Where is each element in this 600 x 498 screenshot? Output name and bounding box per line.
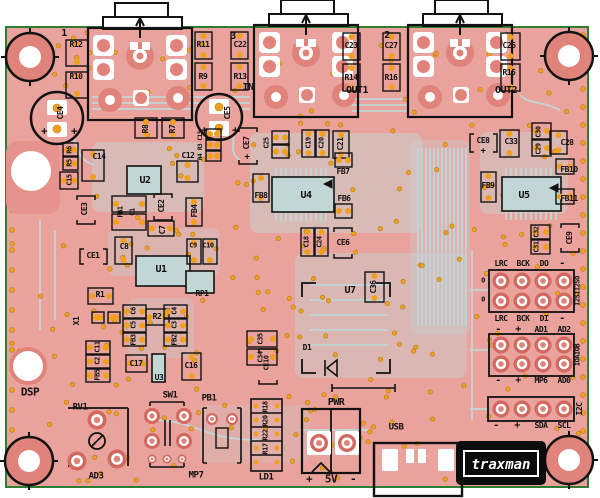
silk-label-pwr-minus: - <box>350 474 356 485</box>
silk-label-ce7: CE7 <box>243 137 251 150</box>
silk-label-r2: R2 <box>153 313 162 321</box>
silk-label-r15: R15 <box>503 69 516 77</box>
silk-label-u3: U3 <box>155 374 164 382</box>
silk-label-r17: R17 <box>263 443 270 454</box>
silk-label-c5: C5 <box>131 321 138 328</box>
silk-label-c23: C23 <box>345 42 358 50</box>
silk-label-ce7-plus: + <box>245 154 250 163</box>
silk-label-u4: U4 <box>300 191 311 201</box>
silk-label-r18: R18 <box>263 401 270 412</box>
silk-label-hdr1-o1: 0 <box>481 278 485 285</box>
silk-label-r4: R4 <box>198 154 204 160</box>
silk-label-pb1: PB1 <box>202 395 217 404</box>
silk-label-r3: R3 <box>198 144 204 150</box>
silk-label-c30: C30 <box>536 126 543 137</box>
silk-label-c22: C22 <box>234 41 247 49</box>
silk-label-hdr1b-lrc: LRC <box>495 315 508 323</box>
silk-label-c3: C3 <box>172 321 179 328</box>
silk-label-c6: C6 <box>131 307 138 314</box>
silk-label-i2s-vertical: I2SII2SO <box>575 276 582 306</box>
silk-label-hdr1-do: DO <box>540 260 549 268</box>
silk-label-r9: R9 <box>199 73 208 81</box>
silk-label-pwr-5v: 5V <box>325 474 337 485</box>
silk-label-hdr2b-dash: - <box>495 376 501 386</box>
silk-label-c24: C24 <box>317 236 324 247</box>
silk-label-r11: R11 <box>197 41 210 49</box>
silk-label-r7: R7 <box>169 125 177 134</box>
silk-label-hdr2b-plus: + <box>515 376 521 386</box>
silk-label-u7: U7 <box>344 286 355 296</box>
silk-label-ce9: CE9 <box>566 232 574 245</box>
silk-label-c20: C20 <box>319 137 326 148</box>
silk-label-hdr1b-dash: - <box>559 314 565 324</box>
silk-label-hdr3-scl: SCL <box>558 422 571 430</box>
silk-label-c1: C1 <box>130 208 137 215</box>
silk-label-c8: C8 <box>120 243 129 251</box>
silk-label-fb4: FB4 <box>191 205 199 218</box>
silk-label-ce3: CE3 <box>81 203 89 216</box>
silk-label-c14: C14 <box>93 153 106 161</box>
silk-label-hdr1-dash: - <box>559 259 565 269</box>
silk-label-hdr1b-bck: BCK <box>517 315 530 323</box>
silk-label-fb5: FB5 <box>95 369 102 380</box>
silkscreen-labels: 132R12R10R11R9C22R13C23C27R14R16C26R15IN… <box>0 0 600 498</box>
silk-label-hdr3-plus: + <box>514 421 520 431</box>
silk-label-c17: C17 <box>130 360 143 368</box>
silk-label-hdr2-ad2: AD2 <box>558 326 571 334</box>
silk-label-fb10: FB10 <box>560 166 577 174</box>
silk-label-ioab-vertical: IOAIOB <box>575 344 582 366</box>
silk-label-out2: OUT2 <box>495 86 517 96</box>
pcb-canvas: traxman 132R12R10R11R9C22R13C23C27R14R16… <box>0 0 600 498</box>
silk-label-out1: OUT1 <box>346 86 368 96</box>
silk-label-fb2: FB2 <box>172 334 179 345</box>
traxman-logo-text: traxman <box>471 457 530 473</box>
silk-label-sw1: SW1 <box>163 392 178 401</box>
silk-label-fb11: FB11 <box>560 195 577 203</box>
silk-label-u5: U5 <box>518 191 529 201</box>
silk-label-ce4-plus-r: + <box>71 126 77 137</box>
silk-label-c2: C2 <box>95 357 102 364</box>
silk-label-hdr1-lrc: LRC <box>495 260 508 268</box>
silk-label-x1: X1 <box>73 317 81 326</box>
silk-label-marker-2: 2 <box>384 31 390 41</box>
silk-label-r6: R6 <box>67 146 74 153</box>
silk-label-ce1: CE1 <box>87 252 100 260</box>
silk-label-hdr1-o2: 0 <box>481 297 485 304</box>
silk-label-r13: R13 <box>234 73 247 81</box>
silk-label-pwr: PWR <box>328 398 345 408</box>
silk-label-fb9: FB9 <box>482 182 495 190</box>
silk-label-ce10: CE10 <box>264 356 271 371</box>
silk-label-c10: C10 <box>202 243 213 250</box>
silk-label-hdr2-plus: + <box>515 325 521 335</box>
silk-label-rv1: RV1 <box>73 404 88 413</box>
silk-label-c31: C31 <box>534 241 541 252</box>
silk-label-hdr1b-di: DI <box>540 315 549 323</box>
silk-label-fb6: FB6 <box>338 195 351 203</box>
silk-label-r20: R20 <box>263 415 270 426</box>
traxman-logo-frame: traxman <box>463 450 538 477</box>
silk-label-fb7: FB7 <box>337 168 350 176</box>
silk-label-d1: D1 <box>303 344 312 352</box>
silk-label-ce5: CE5 <box>224 107 232 120</box>
silk-label-c28: C28 <box>561 139 574 147</box>
silk-label-c36: C36 <box>370 281 378 294</box>
silk-label-ad3: AD3 <box>89 473 104 482</box>
silk-label-marker-1: 1 <box>61 29 67 39</box>
silk-label-c27: C27 <box>385 42 398 50</box>
silk-label-r14: R14 <box>345 74 358 82</box>
silk-label-hdr2b-mp6: MP6 <box>535 377 548 385</box>
silk-label-fb1: FB1 <box>118 206 125 217</box>
silk-label-i2c-vertical: I2C <box>576 403 584 416</box>
silk-label-c18: C18 <box>304 236 311 247</box>
silk-label-hdr3-dash: - <box>493 421 499 431</box>
silk-label-c16: C16 <box>185 362 198 370</box>
silk-label-u1: U1 <box>155 265 166 275</box>
silk-label-ce5-plus-r: + <box>232 125 238 136</box>
silk-label-c21: C21 <box>337 138 345 151</box>
silk-label-c35: C35 <box>258 333 265 344</box>
silk-label-c19: C19 <box>306 137 313 148</box>
silk-label-in: IN <box>242 83 253 93</box>
silk-label-ce6: CE6 <box>337 239 350 247</box>
silk-label-ce2: CE2 <box>158 200 166 213</box>
silk-label-c13: C13 <box>198 131 204 140</box>
silk-label-ce8: CE8 <box>477 137 490 145</box>
silk-label-hdr3-sda: SDA <box>535 422 548 430</box>
silk-label-ce8-plus: + <box>481 148 486 157</box>
silk-label-c7: C7 <box>159 226 167 235</box>
silk-label-r1: R1 <box>96 291 105 299</box>
silk-label-r16: R16 <box>385 74 398 82</box>
silk-label-c32: C32 <box>534 226 541 237</box>
silk-label-hdr2-ad1: AD1 <box>535 326 548 334</box>
silk-label-c4: C4 <box>172 307 179 314</box>
silk-label-c9: C9 <box>189 243 196 250</box>
silk-label-r12: R12 <box>70 41 83 49</box>
silk-label-c29: C29 <box>536 143 543 154</box>
silk-label-ce4-plus-l: + <box>41 126 47 137</box>
silk-label-c26: C26 <box>503 42 516 50</box>
silk-label-mp7: MP7 <box>189 472 204 481</box>
silk-label-ld1: LD1 <box>259 474 274 483</box>
silk-label-c33: C33 <box>505 138 518 146</box>
silk-label-ce4: CE4 <box>57 107 65 120</box>
silk-label-fb3: FB3 <box>131 334 138 345</box>
silk-label-u2: U2 <box>139 176 150 186</box>
silk-label-fb8: FB8 <box>255 192 268 200</box>
silk-label-hdr2b-ad0: AD0 <box>558 377 571 385</box>
silk-label-usb: USB <box>389 424 404 433</box>
silk-label-pwr-plus: + <box>306 474 312 485</box>
silk-label-hdr1-bck: BCK <box>517 260 530 268</box>
silk-label-r10: R10 <box>70 73 83 81</box>
silk-label-r8: R8 <box>142 125 150 134</box>
silk-label-c12: C12 <box>182 152 195 160</box>
silk-label-r5: R5 <box>67 159 74 166</box>
silk-label-c11: C11 <box>95 341 102 352</box>
silk-label-c25: C25 <box>264 137 271 148</box>
silk-label-dsp: DSP <box>21 387 39 398</box>
silk-label-r22: R22 <box>263 429 270 440</box>
silk-label-c15: C15 <box>67 174 74 185</box>
silk-label-hdr2-dash: - <box>495 325 501 335</box>
traxman-logo: traxman <box>456 441 546 485</box>
silk-label-rp1: RP1 <box>196 290 209 298</box>
